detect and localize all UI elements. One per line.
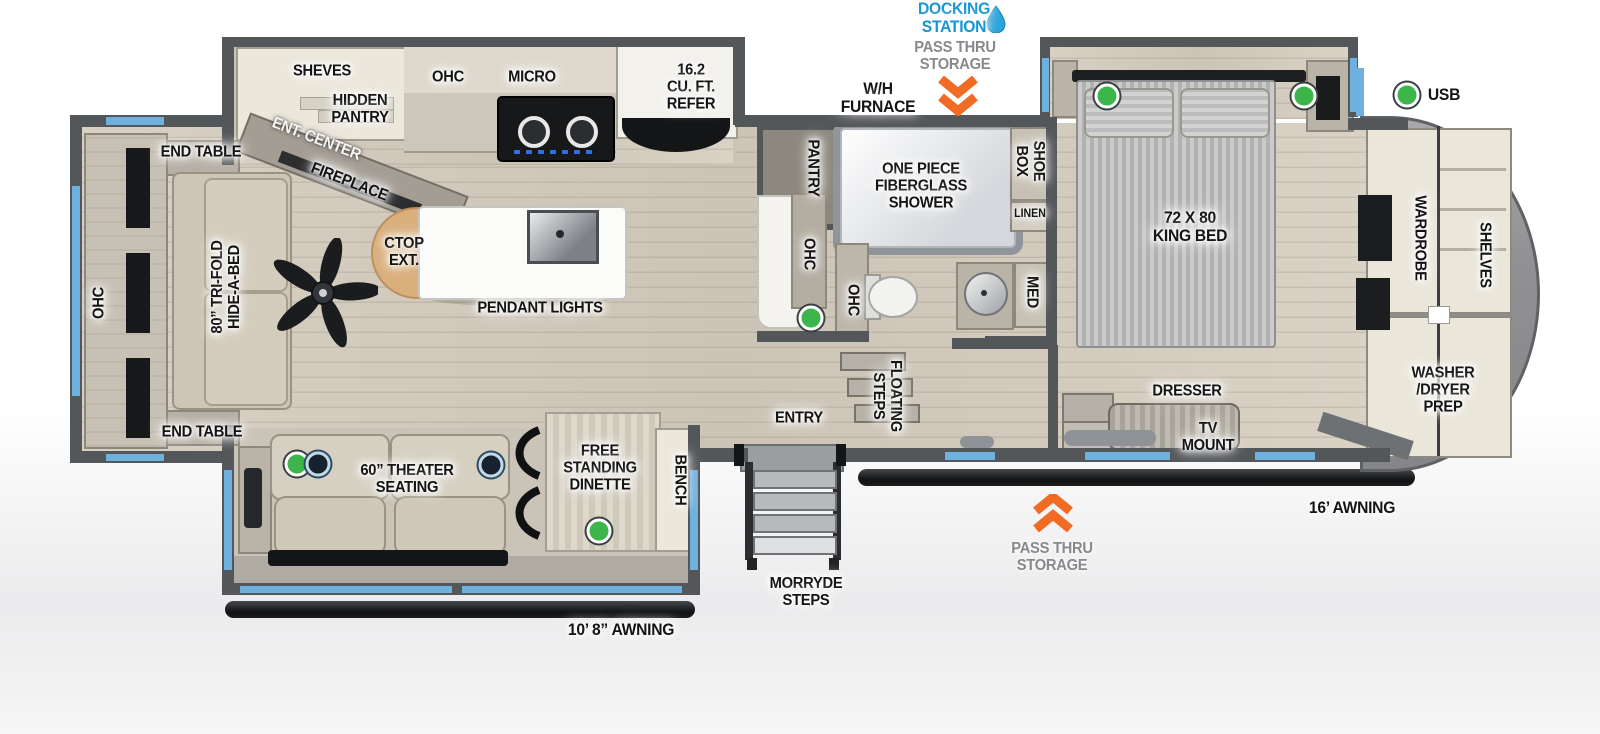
entry-bracket bbox=[836, 444, 846, 466]
stove-burner bbox=[566, 116, 598, 148]
ceiling-fan-icon bbox=[268, 238, 378, 348]
pass-thru-top-label: PASS THRU STORAGE bbox=[914, 40, 995, 74]
steps-rail bbox=[745, 462, 753, 560]
theater-seating-label: 60” THEATER SEATING bbox=[360, 463, 453, 497]
closet-shelf-line bbox=[1440, 168, 1506, 171]
wh-furnace-label: W/H FURNACE bbox=[841, 80, 916, 116]
stove-burner bbox=[518, 116, 550, 148]
stair-railing bbox=[985, 336, 1055, 345]
bottom-window bbox=[1255, 452, 1315, 460]
step-tread bbox=[753, 470, 837, 489]
step-tread bbox=[753, 536, 837, 555]
hide-a-bed-label: 80” TRI-FOLD HIDE-A-BED bbox=[210, 240, 244, 333]
speaker-dot bbox=[306, 452, 331, 477]
bottom-window bbox=[945, 452, 995, 460]
bath-ohc-label: OHC bbox=[844, 284, 861, 316]
bed-slide-wall-top bbox=[1040, 37, 1358, 47]
end-table-bottom-label: END TABLE bbox=[162, 425, 243, 442]
step-foot bbox=[829, 558, 839, 570]
rear-cabinet-recess bbox=[126, 148, 150, 228]
counter-ohc-label: OHC bbox=[800, 238, 817, 270]
awning-rear-label: 10’ 8” AWNING bbox=[568, 621, 674, 639]
slide-window bbox=[462, 586, 682, 593]
kitchen-slide-wall-right bbox=[733, 37, 745, 125]
rear-cabinet-recess bbox=[126, 253, 150, 333]
entry-label: ENTRY bbox=[775, 411, 823, 428]
entry-landing bbox=[740, 444, 844, 472]
awning-bar-rear bbox=[225, 601, 695, 618]
pantry-label: PANTRY bbox=[804, 139, 821, 196]
stove-igniter-strip bbox=[514, 150, 598, 154]
closet-shelf-line bbox=[1440, 248, 1506, 251]
hidden-pantry-label: HIDDEN PANTRY bbox=[331, 93, 388, 127]
usb-label: USB bbox=[1428, 86, 1460, 104]
theater-base bbox=[268, 550, 508, 566]
tv-mount-bar bbox=[960, 436, 994, 448]
shower-label: ONE PIECE FIBERGLASS SHOWER bbox=[875, 162, 967, 213]
top-wall-front bbox=[1348, 118, 1408, 130]
med-label: MED bbox=[1023, 276, 1040, 308]
ctop-ext-label: CTOP EXT. bbox=[384, 236, 424, 270]
dinette-label: FREE STANDING DINETTE bbox=[563, 444, 637, 495]
led-dot bbox=[799, 306, 824, 331]
pass-thru-arrow-up-icon bbox=[1031, 494, 1075, 534]
sink-faucet bbox=[556, 230, 564, 238]
rear-cabinet-recess bbox=[126, 358, 150, 438]
king-bed-label: 72 X 80 KING BED bbox=[1153, 209, 1227, 245]
closet-shelf-line bbox=[1440, 208, 1506, 211]
tv-mount-label: TV MOUNT bbox=[1182, 421, 1235, 455]
slide-window bbox=[690, 470, 698, 570]
pendant-lights-label: PENDANT LIGHTS bbox=[477, 301, 602, 318]
led-dot bbox=[1095, 84, 1120, 109]
step-tread bbox=[753, 514, 837, 533]
closet-door-handle bbox=[1428, 306, 1450, 324]
bath-sink-drain bbox=[981, 290, 987, 296]
rear-top-window bbox=[106, 117, 164, 125]
kitchen-slide-wall-top bbox=[222, 37, 745, 47]
linen-label: LINEN bbox=[1014, 208, 1046, 220]
tv-mount-bar bbox=[1064, 430, 1156, 446]
bottom-window bbox=[1085, 452, 1170, 460]
top-wall-mid bbox=[735, 115, 1047, 127]
micro-label: MICRO bbox=[508, 70, 556, 87]
bed-pillow bbox=[1180, 88, 1270, 138]
bathroom-wall-bottom-left bbox=[757, 331, 869, 342]
speaker-dot bbox=[479, 453, 504, 478]
kitchen-ohc-label: OHC bbox=[432, 70, 464, 87]
rear-wall-window bbox=[72, 186, 80, 396]
refer-label: 16.2 CU. FT. REFER bbox=[667, 63, 716, 114]
awning-front-label: 16’ AWNING bbox=[1309, 499, 1395, 517]
usb-legend-dot bbox=[1395, 83, 1420, 108]
awning-bar-front bbox=[858, 469, 1415, 486]
bottom-rear-window bbox=[106, 454, 164, 461]
washer-dryer-label: WASHER /DRYER PREP bbox=[1412, 366, 1475, 417]
bedroom-window bbox=[1042, 58, 1049, 112]
sheves-label: SHEVES bbox=[293, 64, 351, 81]
toilet-bowl bbox=[868, 276, 918, 318]
dresser-label: DRESSER bbox=[1152, 384, 1221, 401]
led-dot bbox=[1292, 84, 1317, 109]
morryde-steps-label: MORRYDE STEPS bbox=[770, 576, 843, 610]
pass-thru-arrow-down-icon bbox=[936, 76, 980, 116]
step-foot bbox=[747, 558, 757, 570]
docking-station-label: DOCKING STATION bbox=[918, 0, 990, 36]
bathroom-wall-right bbox=[1046, 117, 1057, 345]
dinette-chairs-icon bbox=[505, 424, 549, 546]
led-dot bbox=[587, 519, 612, 544]
rv-floorplan-diagram: DOCKING STATION PASS THRU STORAGE W/H FU… bbox=[0, 0, 1600, 734]
bedroom-divider-wall bbox=[1048, 345, 1058, 455]
bench-label: BENCH bbox=[671, 455, 688, 506]
side-table-recess bbox=[244, 468, 262, 528]
wardrobe-label: WARDROBE bbox=[1411, 195, 1428, 280]
floating-steps-label: FLOATING STEPS bbox=[869, 360, 903, 432]
slide-window bbox=[224, 470, 232, 570]
end-table-top-label: END TABLE bbox=[161, 145, 242, 162]
front-shelves-label: SHELVES bbox=[1476, 222, 1493, 288]
pass-thru-bottom-label: PASS THRU STORAGE bbox=[1011, 541, 1092, 575]
closet-dark-recess bbox=[1358, 195, 1392, 261]
island-sink bbox=[527, 210, 599, 264]
rear-ohc-label: OHC bbox=[92, 287, 109, 319]
theater-seat-cushion bbox=[394, 496, 506, 556]
nightstand-left bbox=[1052, 60, 1078, 118]
closet-dark-recess bbox=[1356, 278, 1390, 330]
step-tread bbox=[753, 492, 837, 511]
entry-bracket bbox=[734, 444, 744, 466]
shoe-box-label: SHOE BOX bbox=[1012, 141, 1046, 182]
front-window bbox=[1356, 68, 1364, 116]
slide-window bbox=[240, 586, 452, 593]
theater-seat-cushion bbox=[274, 496, 386, 556]
nightstand-tv bbox=[1316, 76, 1340, 120]
